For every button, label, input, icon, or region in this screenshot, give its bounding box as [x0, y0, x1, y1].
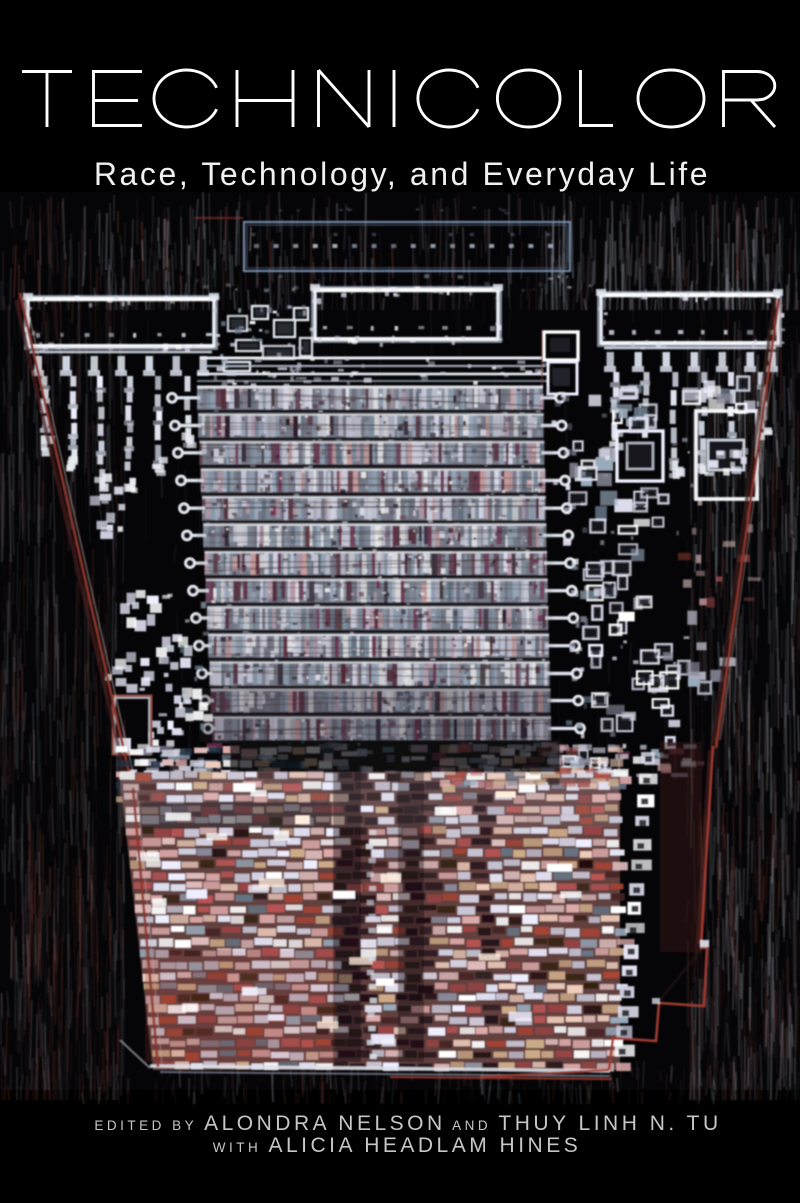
svg-text:Race, Technology, and Everyday: Race, Technology, and Everyday Life	[94, 156, 710, 192]
svg-text:WITH ALICIA HEADLAM HINES: WITH ALICIA HEADLAM HINES	[213, 1134, 582, 1157]
